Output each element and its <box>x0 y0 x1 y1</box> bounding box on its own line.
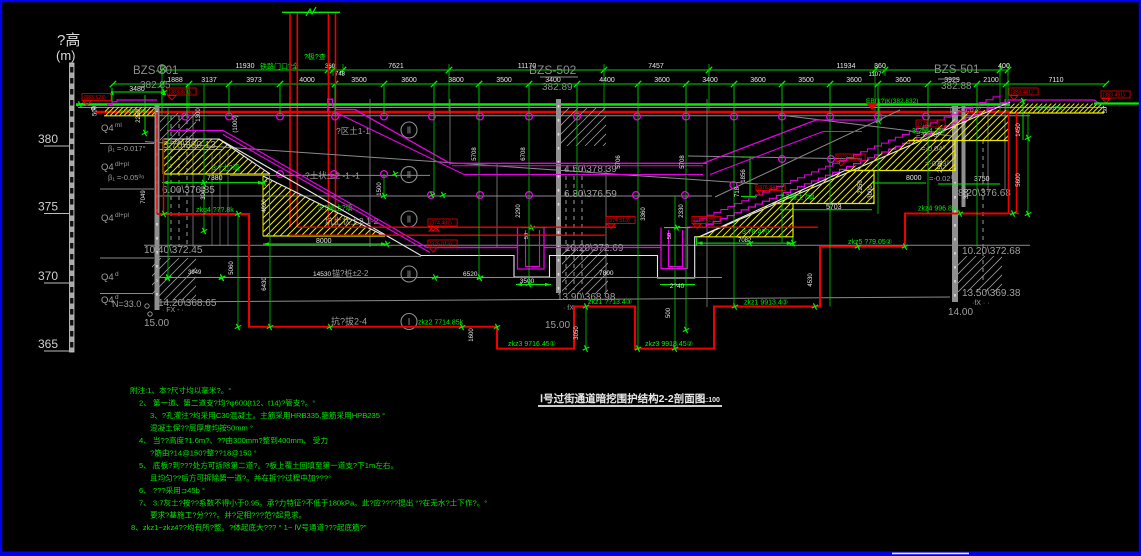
svg-text:3400: 3400 <box>702 77 718 84</box>
svg-text:zkz2 7714.85k: zkz2 7714.85k <box>418 320 464 327</box>
svg-text:4530: 4530 <box>808 273 814 287</box>
svg-text:6、 ???采用⊐45b °: 6、 ???采用⊐45b ° <box>139 485 205 495</box>
svg-text:360: 360 <box>325 64 336 70</box>
svg-text:?极?查: ?极?查 <box>304 52 326 61</box>
svg-text:2250: 2250 <box>136 109 142 123</box>
svg-text:混凝土保??层厚度均按50mm °: 混凝土保??层厚度均按50mm ° <box>150 423 253 433</box>
svg-text:718: 718 <box>735 186 741 197</box>
svg-text:3:?78.3?%: 3:?78.3?% <box>1036 106 1062 112</box>
svg-text:zkg4 ?7?.8k: zkg4 ?7?.8k <box>196 207 234 214</box>
svg-text:382.85: 382.85 <box>140 80 171 91</box>
svg-text:360: 360 <box>874 63 886 70</box>
svg-text:400: 400 <box>998 63 1010 70</box>
svg-text:(383.871): (383.871) <box>169 90 191 96</box>
svg-text:d: d <box>115 271 119 278</box>
svg-text:2500: 2500 <box>938 159 944 173</box>
svg-text:(383.491): (383.491) <box>1103 93 1125 99</box>
svg-text:7、 3:7灰土?按??系数不得小于0.95。承?力特征?不: 7、 3:7灰土?按??系数不得小于0.95。承?力特征?不低于180kPa。此… <box>139 498 487 508</box>
svg-text:10.20\372.68: 10.20\372.68 <box>962 246 1021 257</box>
svg-text:?高: ?高 <box>57 32 80 49</box>
svg-text:6.00\376.85: 6.00\376.85 <box>162 185 215 196</box>
svg-text:dl+pl: dl+pl <box>115 212 129 219</box>
svg-text:50: 50 <box>1103 107 1109 113</box>
svg-text:3:?土?填: 3:?土?填 <box>212 163 240 172</box>
svg-text:5、 底板?到???处方可拆除第二道?。?板上覆土回填至第一: 5、 底板?到???处方可拆除第二道?。?板上覆土回填至第一道支?下1m左右。 <box>139 460 398 470</box>
svg-text:3600: 3600 <box>895 77 911 84</box>
svg-text:3000: 3000 <box>868 185 874 199</box>
svg-text:500: 500 <box>93 105 99 116</box>
svg-text:5600: 5600 <box>1016 173 1022 187</box>
svg-text:3600: 3600 <box>750 77 766 84</box>
svg-text:2100: 2100 <box>983 77 999 84</box>
svg-text:Q4: Q4 <box>101 162 114 173</box>
svg-text:4000: 4000 <box>299 77 315 84</box>
svg-text:382.89: 382.89 <box>542 82 573 93</box>
svg-text:zkz1 ??13.4③: zkz1 ??13.4③ <box>588 298 632 306</box>
svg-text:?区土1-1: ?区土1-1 <box>336 126 370 136</box>
svg-text:4400: 4400 <box>599 77 615 84</box>
svg-text:N=33.0: N=33.0 <box>112 299 141 309</box>
svg-text:zkz3 9918.45②: zkz3 9918.45② <box>645 340 693 348</box>
svg-text:Ⅱ: Ⅱ <box>407 270 412 281</box>
svg-text:14.00: 14.00 <box>948 307 973 318</box>
svg-text:3050: 3050 <box>574 326 580 340</box>
svg-text:(374.513): (374.513) <box>608 218 630 224</box>
svg-text:4920: 4920 <box>262 199 268 213</box>
svg-text:铁路门口?全: 铁路门口?全 <box>260 62 299 71</box>
svg-text:3973: 3973 <box>246 77 262 84</box>
svg-text:5706: 5706 <box>616 155 622 169</box>
svg-text:7800: 7800 <box>599 270 614 277</box>
svg-text:7621: 7621 <box>388 63 404 70</box>
svg-text:3:?(38?.3%: 3:?(38?.3% <box>119 109 147 115</box>
svg-text:?土状土2 -1 -1: ?土状土2 -1 -1 <box>305 171 360 181</box>
svg-text:3600: 3600 <box>654 77 670 84</box>
svg-text:3750: 3750 <box>974 176 990 183</box>
svg-text:1450: 1450 <box>1016 123 1022 137</box>
svg-text:300: 300 <box>964 188 970 199</box>
svg-text:382.88: 382.88 <box>941 81 972 92</box>
svg-text:13.50\369.38: 13.50\369.38 <box>962 288 1021 299</box>
svg-text:(1000): (1000) <box>233 115 239 132</box>
svg-text:3:?圞土?填: 3:?圞土?填 <box>318 203 353 212</box>
svg-text:15.00: 15.00 <box>144 318 169 329</box>
svg-text:6430: 6430 <box>262 277 268 291</box>
svg-text:2、 第一道、第二道支?均?φ600(t12、t14)?管支: 2、 第一道、第二道支?均?φ600(t12、t14)?管支?。° <box>139 398 315 408</box>
svg-text:dl+pl: dl+pl <box>115 161 129 168</box>
svg-text:2?40: 2?40 <box>670 283 685 290</box>
svg-text:3、?孔灌注?均采用C30混凝土。主筋采用HRB335,箍筋: 3、?孔灌注?均采用C30混凝土。主筋采用HRB335,箍筋采用HPB235 ° <box>150 410 385 420</box>
svg-text:zkz1 9913.4③: zkz1 9913.4③ <box>744 299 788 307</box>
svg-text:6708: 6708 <box>521 147 527 161</box>
svg-text:(374.482): (374.482) <box>430 221 452 227</box>
svg-text:2250: 2250 <box>858 180 864 194</box>
svg-text:·fX · ·: ·fX · · <box>972 300 990 307</box>
svg-text:50: 50 <box>667 233 673 239</box>
svg-text:2330: 2330 <box>679 204 685 218</box>
svg-text:BZS-501: BZS-501 <box>934 64 979 76</box>
svg-text:锚?桩±2-2: 锚?桩±2-2 <box>332 268 369 278</box>
svg-text:· fX: · fX <box>563 305 574 312</box>
svg-text:3800: 3800 <box>448 77 464 84</box>
svg-text:1300: 1300 <box>196 108 202 122</box>
svg-text:5703: 5703 <box>826 204 842 211</box>
svg-text:3949: 3949 <box>188 270 202 276</box>
svg-text:8000: 8000 <box>316 238 332 245</box>
svg-text:7110: 7110 <box>1048 77 1063 84</box>
svg-text:=-0.02⁰: =-0.02⁰ <box>929 174 953 183</box>
svg-text:3137: 3137 <box>201 77 217 84</box>
svg-text:370: 370 <box>38 269 58 283</box>
svg-text:10.40\372.45: 10.40\372.45 <box>144 245 203 256</box>
svg-text:附注:1、本?尺寸均以毫米?。°: 附注:1、本?尺寸均以毫米?。° <box>130 385 231 395</box>
svg-text:β₁ =-0.05⁰ᵒ: β₁ =-0.05⁰ᵒ <box>108 173 144 182</box>
svg-text:3500: 3500 <box>351 77 367 84</box>
svg-text:748: 748 <box>335 72 346 78</box>
svg-text:Q4: Q4 <box>101 213 114 224</box>
svg-text:3360: 3360 <box>641 207 647 221</box>
svg-text:3:?圞土?填: 3:?圞土?填 <box>780 192 815 201</box>
svg-text:?筋由?14@150?整??18@150 °: ?筋由?14@150?整??18@150 ° <box>150 448 257 458</box>
svg-text:(383.523): (383.523) <box>84 95 106 101</box>
svg-text:BZS-502: BZS-502 <box>529 63 577 77</box>
svg-text:11930: 11930 <box>236 63 255 70</box>
svg-text:375: 375 <box>38 200 58 214</box>
svg-text:要求?基施工?分???。并?足相???范?起見求。: 要求?基施工?分???。并?足相???范?起見求。 <box>150 510 306 520</box>
svg-text:BZS-501: BZS-501 <box>133 65 178 77</box>
svg-text:zkz5 ?79.05②: zkz5 ?79.05② <box>848 238 892 246</box>
svg-text:380: 380 <box>38 132 58 146</box>
svg-text:(373.441): (373.441) <box>838 156 860 162</box>
svg-text:7380: 7380 <box>207 175 223 182</box>
svg-text:15.00: 15.00 <box>545 320 570 331</box>
svg-text:5060: 5060 <box>229 261 235 275</box>
svg-text:7049: 7049 <box>141 190 147 204</box>
svg-text:10.20\372.69: 10.20\372.69 <box>565 243 624 254</box>
svg-text:Ⅱ: Ⅱ <box>407 126 412 137</box>
svg-text:6.30\376.59: 6.30\376.59 <box>564 189 617 200</box>
svg-text:3600: 3600 <box>846 77 862 84</box>
svg-text:抗?拔2-4: 抗?拔2-4 <box>331 316 367 327</box>
svg-text:Q4: Q4 <box>101 123 114 134</box>
svg-text:2290: 2290 <box>516 204 522 218</box>
svg-text:5708: 5708 <box>472 147 478 161</box>
svg-text:8、zkz1~zkz4??均有所?整。?体起底大??? °: 8、zkz1~zkz4??均有所?整。?体起底大??? ° 1~ Ⅳ号通道???… <box>131 522 367 532</box>
svg-text:Ⅱ: Ⅱ <box>407 215 412 226</box>
svg-text:11934: 11934 <box>837 63 856 70</box>
svg-text:(376.841): (376.841) <box>758 185 780 191</box>
svg-text:5708: 5708 <box>680 155 686 169</box>
svg-text:(375.013): (375.013) <box>430 242 452 248</box>
svg-text:1:100: 1:100 <box>702 397 720 404</box>
svg-text:3049: 3049 <box>201 186 207 200</box>
svg-text:Q4: Q4 <box>101 272 114 283</box>
svg-text:(383.441): (383.441) <box>1011 90 1033 96</box>
svg-text:4、 当??高度?1.6m?、??由300mm?整到400m: 4、 当??高度?1.6m?、??由300mm?整到400mm、 受力 <box>139 435 328 445</box>
svg-text:14530: 14530 <box>313 271 331 278</box>
svg-text:3600: 3600 <box>401 77 417 84</box>
svg-text:ml: ml <box>115 122 122 129</box>
svg-text:1600: 1600 <box>469 328 475 342</box>
svg-text:zkz4 996.8④: zkz4 996.8④ <box>918 205 958 213</box>
svg-text:β₁ =-0.017°: β₁ =-0.017° <box>108 144 146 153</box>
svg-text:8000: 8000 <box>906 175 922 182</box>
svg-text:365: 365 <box>38 337 58 351</box>
svg-text:(m): (m) <box>56 48 76 63</box>
svg-text:3500: 3500 <box>496 77 512 84</box>
svg-text:(374.075): (374.075) <box>918 122 940 128</box>
svg-text:Ⅱ: Ⅱ <box>407 170 412 181</box>
svg-text:500: 500 <box>666 307 672 318</box>
svg-text:1107: 1107 <box>869 72 883 78</box>
svg-text:3:78.4?0: 3:78.4?0 <box>742 229 769 236</box>
svg-text:zkz3 9716.45①: zkz3 9716.45① <box>508 340 556 348</box>
svg-text:7457: 7457 <box>648 63 664 70</box>
svg-text:1856: 1856 <box>741 169 747 183</box>
svg-text:(374.425): (374.425) <box>694 218 716 224</box>
svg-text:14.20\368.65: 14.20\368.65 <box>158 298 217 309</box>
svg-text:且均匀??后方可拆除第一道?。并在拆??过程中加???°: 且均匀??后方可拆除第一道?。并在拆??过程中加???° <box>150 473 331 483</box>
svg-text:Ⅰ号过街通道暗挖围护结构2-2剖面图: Ⅰ号过街通道暗挖围护结构2-2剖面图 <box>540 392 705 405</box>
svg-text:3500: 3500 <box>798 77 814 84</box>
svg-text:1500: 1500 <box>377 182 383 196</box>
